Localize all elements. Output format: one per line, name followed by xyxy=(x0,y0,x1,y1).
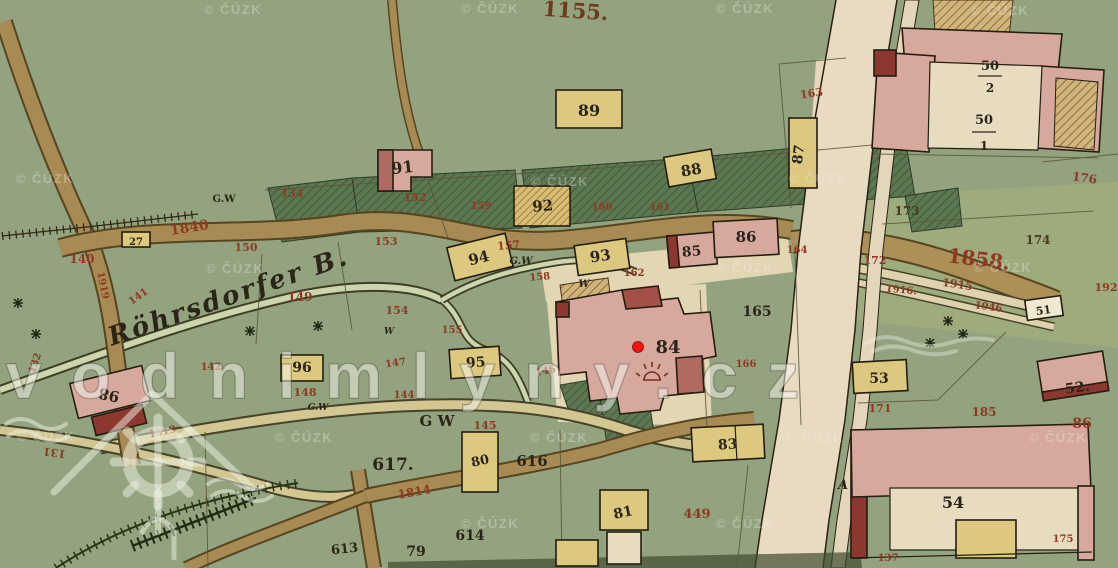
cuzk-watermark: © ČÚZK xyxy=(786,430,844,445)
map-label: 613 xyxy=(330,541,359,559)
map-label: 145 xyxy=(474,419,497,432)
map-label: 161 xyxy=(650,202,671,213)
map-label: 157 xyxy=(497,238,521,253)
map-label: G.W xyxy=(213,194,237,205)
map-label: 159 xyxy=(471,201,492,212)
cuzk-watermark: © ČÚZK xyxy=(716,1,774,16)
map-label: 173 xyxy=(894,204,919,218)
map-label: 616 xyxy=(516,452,547,470)
cuzk-watermark: © ČÚZK xyxy=(974,260,1032,275)
cuzk-watermark: © ČÚZK xyxy=(206,261,264,276)
map-label: G W xyxy=(420,412,456,430)
map-label: 185 xyxy=(971,405,996,419)
map-label: 192 xyxy=(1095,281,1118,294)
map-label: 162 xyxy=(624,268,645,279)
map-label: 87 xyxy=(790,144,808,165)
cuzk-watermark: © ČÚZK xyxy=(461,1,519,16)
logo-wheel-hub xyxy=(153,457,163,467)
cadastral-map-canvas: 1155.89918887929493959680838185868498275… xyxy=(0,0,1118,568)
cuzk-watermark: © ČÚZK xyxy=(275,430,333,445)
map-label: 89 xyxy=(578,101,600,120)
map-label: 137 xyxy=(878,553,899,564)
cuzk-watermark: © ČÚZK xyxy=(1029,430,1087,445)
map-label: 158 xyxy=(529,271,551,284)
map-label: 174 xyxy=(1025,233,1050,247)
map-label: 79 xyxy=(406,544,425,560)
map-viewport[interactable]: 1155.89918887929493959680838185868498275… xyxy=(0,0,1118,568)
map-label: 88 xyxy=(679,159,703,180)
map-label: 150 xyxy=(235,241,258,254)
map-label: 449 xyxy=(683,507,710,522)
building-81-annex2 xyxy=(556,540,598,566)
map-label: 85 xyxy=(681,243,702,261)
map-label: 175 xyxy=(1053,534,1074,545)
cuzk-watermark: © ČÚZK xyxy=(716,516,774,531)
map-label: 83 xyxy=(717,436,738,453)
cuzk-watermark: © ČÚZK xyxy=(16,171,74,186)
map-label: 154 xyxy=(386,304,409,317)
map-label: 160 xyxy=(592,202,613,213)
map-label: G.W xyxy=(510,256,535,267)
map-label: W xyxy=(578,279,591,290)
map-label: 171 xyxy=(869,402,892,415)
map-label: 50 xyxy=(981,59,999,74)
map-label: 149 xyxy=(287,290,312,304)
map-label: A xyxy=(836,478,848,493)
cuzk-watermark: © ČÚZK xyxy=(531,174,589,189)
building-81-annex xyxy=(607,532,641,564)
map-label: 2 xyxy=(986,81,994,95)
map-label: W xyxy=(384,327,395,337)
cuzk-watermark: © ČÚZK xyxy=(461,516,519,531)
map-label: 617. xyxy=(372,455,413,475)
map-label: 52. xyxy=(1064,378,1090,397)
map-label: 92 xyxy=(532,196,554,215)
map-label: 140 xyxy=(69,252,94,266)
map-label: 165 xyxy=(742,304,771,320)
selected-mill-marker[interactable] xyxy=(633,342,644,353)
map-label: 153 xyxy=(375,235,398,248)
map-label: 91 xyxy=(390,157,414,178)
map-label: 152 xyxy=(404,191,427,204)
map-label: 1 xyxy=(980,139,988,153)
map-label: 164 xyxy=(787,245,808,256)
cuzk-watermark: © ČÚZK xyxy=(204,2,262,17)
cuzk-watermark: © ČÚZK xyxy=(716,260,774,275)
map-label: 172 xyxy=(864,254,887,267)
cuzk-watermark: © ČÚZK xyxy=(530,430,588,445)
cuzk-watermark: © ČÚZK xyxy=(971,3,1029,18)
map-label: 86 xyxy=(736,228,757,246)
map-label: 27 xyxy=(129,237,143,248)
map-label: 51 xyxy=(1035,303,1052,318)
cuzk-watermark: © ČÚZK xyxy=(789,171,847,186)
map-label: 134 xyxy=(281,187,304,200)
map-label: 93 xyxy=(589,246,612,267)
map-label: 155 xyxy=(442,325,463,336)
map-label: 54 xyxy=(942,493,964,512)
map-label: 50 xyxy=(975,113,993,128)
map-label: 53 xyxy=(869,371,888,387)
